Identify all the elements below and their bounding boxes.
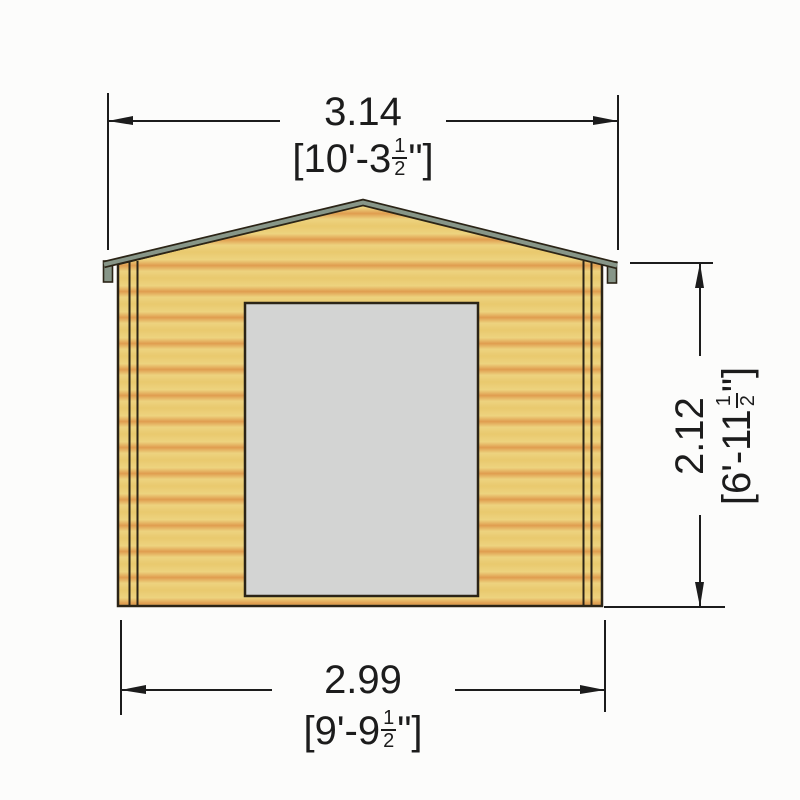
fraction-denominator: 2 (738, 393, 759, 408)
top-dim-arrow-left (108, 116, 133, 125)
door-opening (245, 303, 478, 596)
bottom-dim-arrow-right (580, 685, 605, 694)
fraction-numerator: 1 (392, 136, 407, 159)
elevation-drawing-canvas: 3.14 [10'-312"] 2.99 [9'-912"] 2.12 [6'-… (0, 0, 800, 800)
right-dim-arrow-bottom (695, 582, 704, 607)
bottom-dimension-imperial-label: [9'-912"] (243, 708, 483, 752)
fraction-numerator: 1 (381, 708, 396, 731)
right-dim-arrow-top (695, 263, 704, 288)
imperial-suffix: "] (397, 709, 422, 753)
top-dimension-metric-label: 3.14 (263, 92, 463, 132)
fraction-denominator: 2 (381, 731, 396, 752)
right-dimension-label-block: 2.12 [6'-1112"] (667, 326, 761, 546)
right-dimension-metric-label: 2.12 (667, 326, 714, 546)
fraction: 12 (714, 393, 758, 408)
imperial-suffix: "] (408, 137, 433, 181)
top-dim-arrow-right (593, 116, 618, 125)
fraction: 12 (392, 136, 407, 180)
imperial-suffix: "] (715, 367, 759, 392)
top-dimension-imperial-label: [10'-312"] (243, 136, 483, 180)
cabin-front-face (118, 204, 602, 606)
imperial-prefix: [6'-11 (715, 409, 759, 505)
bottom-dim-arrow-left (121, 685, 146, 694)
fraction-numerator: 1 (714, 393, 737, 408)
fraction: 12 (381, 708, 396, 752)
bottom-dimension-metric-label: 2.99 (263, 660, 463, 700)
imperial-prefix: [9'-9 (304, 709, 381, 753)
imperial-prefix: [10'-3 (292, 137, 391, 181)
fraction-denominator: 2 (392, 159, 407, 180)
right-dimension-imperial-label: [6'-1112"] (714, 326, 761, 546)
